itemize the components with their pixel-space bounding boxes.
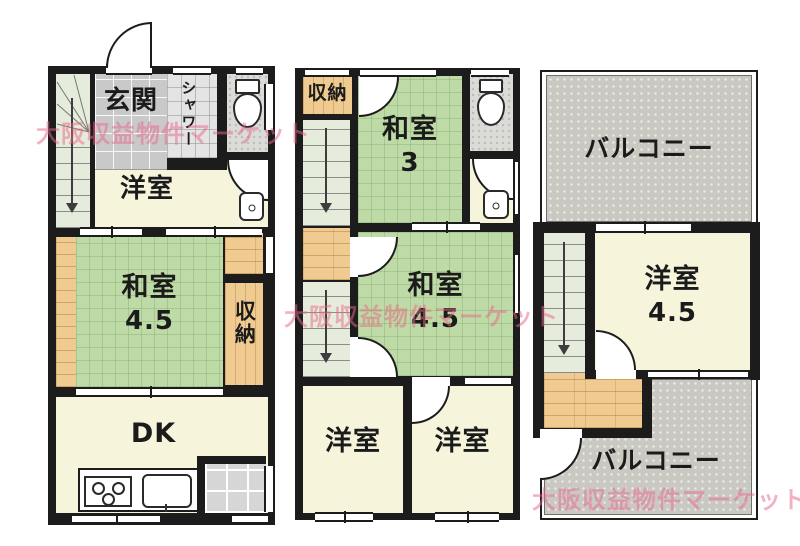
room-label-balcony-top: バルコニー [546,136,752,162]
window [264,237,275,273]
window [173,66,211,75]
landing-3f [544,373,585,428]
landing-3f [585,379,642,428]
room-label-washitsu3: 和室 [358,116,462,144]
floorplan-canvas: 玄関 シャワー 洋室 和室 4.5 収納 DK 収納 [0,0,800,546]
window [264,466,275,512]
watermark-text: 大阪収益物件マーケット [36,114,311,149]
window [471,68,509,77]
wall [750,222,760,380]
toilet-bowl [477,92,505,126]
window [596,222,691,233]
genkan-step-line [95,169,167,170]
window [72,514,160,524]
sink-icon [483,190,509,219]
window [648,370,748,379]
stairs-2f-landing [303,228,350,280]
room-label-yoshitsu-3f: 洋室 [595,266,750,294]
wall [585,233,595,373]
stove-icon [84,476,132,507]
room-label-genkan: 玄関 [95,88,167,115]
kitchen-sink-icon [142,474,192,508]
door-opening [596,370,636,379]
wood-alcove-1f [225,233,263,274]
toilet-tank [235,79,260,94]
room-label-washitsu-1f: 和室 [76,274,223,302]
sliding-door [465,376,511,386]
window [315,512,373,522]
room-label-balcony-bottom: バルコニー [560,448,752,474]
sink-icon [239,192,264,221]
door-opening [412,377,450,386]
door-opening [350,237,358,277]
room-label-yoshitsu-2f-left: 洋室 [303,428,403,456]
room-label-yoshitsu-1f: 洋室 [92,176,202,203]
door-opening [540,429,582,438]
stairs-3f-down-arrow [563,242,565,352]
window [305,68,349,77]
room-size-washitsu-1f: 4.5 [76,308,223,335]
door-opening [350,337,358,377]
window [236,66,263,75]
watermark-text: 大阪収益物件マーケット [532,480,800,515]
toilet-icon [475,79,507,127]
sliding-door [166,227,262,237]
room-label-dk: DK [76,420,231,448]
room-label-shunou-1f: 収納 [233,300,254,370]
room-label-shunou-2f: 収納 [303,84,352,103]
room-label-washitsu45: 和室 [358,272,513,300]
stairs-2f-upper-down-arrow [325,128,327,210]
sliding-door [80,227,142,237]
watermark-text: 大阪収益物件マーケット [284,297,559,332]
entry-door-arc [106,22,152,68]
wood-strip-1f [56,237,76,387]
window [435,512,499,522]
wall [197,456,266,464]
room-label-yoshitsu-2f-right: 洋室 [412,428,513,456]
window [360,68,436,77]
sliding-door [412,222,480,232]
window [232,514,268,524]
window [513,162,520,214]
room-size-yoshitsu-3f: 4.5 [595,300,750,327]
faucet-line [165,504,167,512]
utility-tile-1f [205,463,266,513]
sliding-door [76,387,223,397]
room-size-washitsu3: 3 [358,150,462,177]
